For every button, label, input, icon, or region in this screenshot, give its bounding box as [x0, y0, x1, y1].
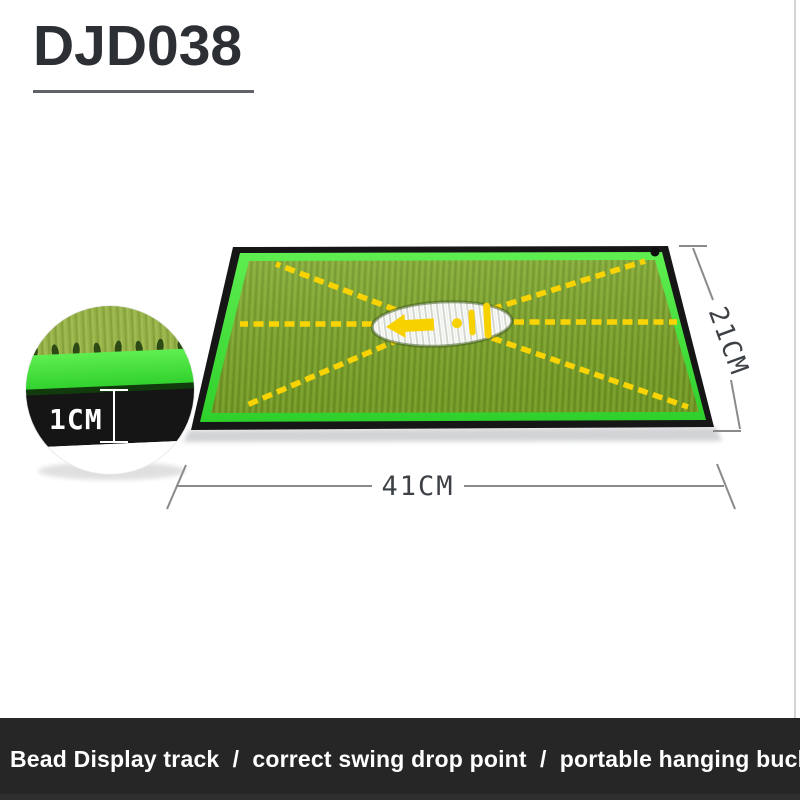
depth-dimension-label: 21CM: [702, 303, 754, 380]
hanging-buckle-hole-icon: [651, 248, 660, 257]
right-edge-line: [794, 0, 796, 718]
thickness-inset-circle: 1CM: [10, 292, 210, 482]
product-illustration: 1CM 41CM 21CM: [0, 0, 800, 800]
width-dimension-label: 41CM: [381, 471, 454, 502]
banner-text: Bead Display track / correct swing drop …: [0, 746, 800, 773]
cross-section-turf-top: [10, 292, 204, 358]
thickness-label: 1CM: [49, 403, 103, 436]
banner-bottom-strip: [0, 794, 800, 800]
training-mat: [191, 246, 714, 430]
turf-cross-section: 1CM: [10, 292, 210, 482]
cross-section-rubber-base: [14, 388, 208, 448]
bottom-feature-banner: Bead Display track / correct swing drop …: [0, 718, 800, 800]
